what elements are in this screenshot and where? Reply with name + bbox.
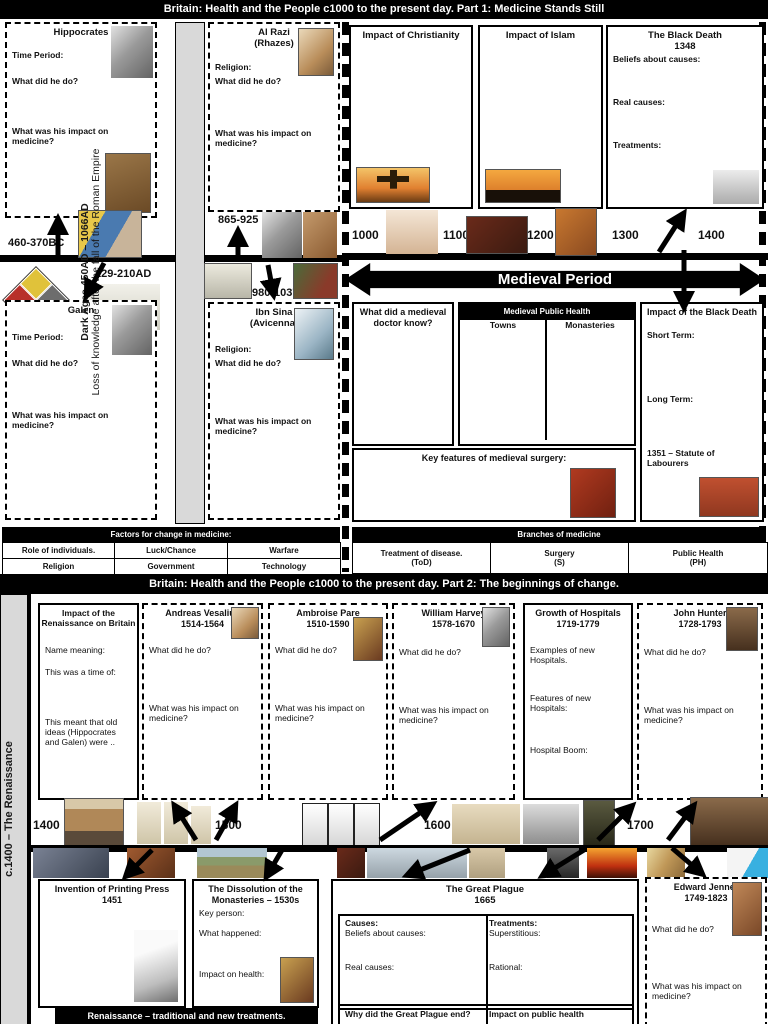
christianity-box: Impact of Christianity — [349, 25, 473, 209]
harvey-portrait-image — [482, 607, 510, 647]
hospitals-f3: Hospital Boom: — [530, 745, 626, 755]
black-death-title: The Black Death — [608, 30, 762, 41]
medieval-scene2-image — [466, 216, 528, 254]
plague-treatments-label: Treatments: — [489, 918, 627, 928]
plague-real-label: Real causes: — [345, 962, 481, 972]
arrow-down-dissolution — [268, 850, 282, 874]
hospitals-f1: Examples of new Hospitals. — [530, 645, 626, 665]
muscle-hand-drawing-image — [328, 803, 354, 847]
market-scene-image — [647, 848, 685, 878]
factor-luck: Luck/Chance — [114, 542, 228, 559]
plague-ph-label: Impact on public health — [489, 1009, 627, 1019]
hand-drawing-image — [303, 212, 337, 258]
branch-surgery-abbr: (S) — [554, 558, 565, 567]
plague-causes-label: Causes: — [345, 918, 481, 928]
renaissance-f2: This was a time of: — [45, 667, 132, 677]
renaissance-f3: This meant that old ideas (Hippocrates a… — [45, 717, 132, 747]
vesalius-q-impact: What was his impact on medicine? — [149, 703, 256, 723]
pare-box: Ambroise Pare 1510-1590 What did he do? … — [268, 603, 388, 800]
plague-dark-image — [337, 848, 365, 878]
school-of-athens-image — [64, 798, 124, 846]
black-death-box: The Black Death 1348 Beliefs about cause… — [606, 25, 764, 209]
hunter-museum-image — [690, 797, 768, 846]
plague-end-question: Why did the Great Plague end? — [345, 1009, 481, 1019]
jenner-box: Edward Jenner 1749-1823 What did he do? … — [645, 877, 767, 1024]
hospitals-f2: Features of new Hospitals: — [530, 693, 626, 713]
dissolution-box: The Dissolution of the Monasteries – 153… — [192, 879, 319, 1008]
branch-tod: Treatment of disease. (ToD) — [352, 542, 491, 574]
timeline2-1500: 1500 — [215, 818, 242, 832]
renaissance-sidebar-label: c.1400 – The Renaissance — [3, 594, 25, 1024]
dissolution-title2: Monasteries – 1530s — [194, 895, 317, 906]
branch-ph-label: Public Health — [673, 549, 724, 558]
hospitals-dates: 1719-1779 — [525, 619, 631, 630]
renaissance-strip-border — [27, 594, 31, 1024]
hippocrates-dates: 460-370BC — [8, 237, 64, 249]
ibn-sina-q-impact: What was his impact on medicine? — [215, 416, 333, 436]
plague-end-cell: Why did the Great Plague end? — [338, 1004, 488, 1024]
medieval-surgery-image — [570, 468, 616, 518]
hospitals-title: Growth of Hospitals — [525, 608, 631, 619]
medieval-surgery-title: Key features of medieval surgery: — [354, 453, 634, 464]
al-razi-dates: 865-925 — [218, 214, 258, 226]
plague-title: The Great Plague — [333, 884, 637, 895]
timeline-1000: 1000 — [352, 228, 379, 242]
plague-ph-cell: Impact on public health — [484, 1004, 634, 1024]
hunter-q-do: What did he do? — [644, 647, 756, 657]
muscle-arm-drawing-image — [302, 803, 328, 847]
renaissance-treatments-banner: Renaissance – traditional and new treatm… — [55, 1008, 318, 1024]
ibn-sina-box: Ibn Sina (Avicenna) Religion: What did h… — [208, 302, 340, 520]
printing-press-drawing-image — [134, 930, 178, 1002]
timeline-1300: 1300 — [612, 228, 639, 242]
vesalius-box: Andreas Vesalius 1514-1564 What did he d… — [142, 603, 263, 800]
great-fire-image — [587, 848, 637, 878]
black-death-f1: Beliefs about causes: — [613, 54, 757, 64]
branches-title: Branches of medicine — [352, 527, 766, 542]
public-health-title: Medieval Public Health — [460, 304, 634, 320]
mosque-sunset-image — [485, 169, 561, 203]
factor-individuals: Role of individuals. — [2, 542, 115, 559]
public-health-col-towns: Towns — [460, 320, 546, 330]
monastery-ruins-image — [197, 848, 267, 878]
harvey-q-impact: What was his impact on medicine? — [399, 705, 508, 725]
ibn-sina-dates: 980-1037 — [252, 287, 299, 299]
timeline-1400: 1400 — [698, 228, 725, 242]
harvey-q-do: What did he do? — [399, 647, 508, 657]
metal-type-image — [33, 848, 109, 878]
part1-divider-left — [342, 22, 349, 572]
islam-title: Impact of Islam — [480, 30, 601, 41]
al-razi-religion: Religion: — [215, 62, 333, 72]
impact-black-death-box: Impact of the Black Death Short Term: Lo… — [640, 302, 764, 522]
branches-table: Branches of medicine Treatment of diseas… — [352, 527, 766, 574]
branch-tod-label: Treatment of disease. — [381, 549, 463, 558]
pare-q-do: What did he do? — [275, 645, 381, 655]
dissolution-f1: Key person: — [199, 908, 312, 918]
dark-ages-label: Dark Ages 450AD – 1066AD Loss of knowled… — [80, 22, 102, 522]
medieval-doctor-question: What did a medieval doctor know? — [354, 307, 452, 329]
plague-street-image — [367, 848, 467, 878]
islam-box: Impact of Islam — [478, 25, 603, 209]
pharmacy-painting-image — [293, 263, 338, 299]
hunter-portrait-image — [726, 607, 758, 651]
timeline2-1600: 1600 — [424, 818, 451, 832]
factor-religion: Religion — [2, 558, 115, 575]
muscle-forearm-drawing-image — [354, 803, 380, 847]
plague-treatments-cell: Treatments: Superstitious: Rational: — [484, 914, 634, 1010]
al-razi-box: Al Razi (Rhazes) Religion: What did he d… — [208, 22, 340, 212]
hospitals-box: Growth of Hospitals 1719-1779 Examples o… — [523, 603, 633, 800]
arrow-up-harvey — [380, 806, 430, 840]
harvey-box: William Harvey 1578-1670 What did he do?… — [392, 603, 515, 800]
great-plague-box: The Great Plague 1665 Causes: Beliefs ab… — [331, 879, 639, 1024]
public-health-table: Medieval Public Health Towns Monasteries — [458, 302, 636, 446]
branch-ph: Public Health (PH) — [628, 542, 768, 574]
jenner-q-do: What did he do? — [652, 924, 760, 934]
hunter-box: John Hunter 1728-1793 What did he do? Wh… — [637, 603, 763, 800]
part1-title: Britain: Health and the People c1000 to … — [0, 0, 768, 19]
medieval-doctor-box: What did a medieval doctor know? — [352, 302, 454, 446]
black-death-year: 1348 — [608, 41, 762, 52]
heart-diagrams-image — [452, 804, 520, 844]
impact-bd-short: Short Term: — [647, 330, 757, 340]
hospital-engraving-image — [523, 804, 579, 844]
black-death-f2: Real causes: — [613, 97, 757, 107]
timeline2-1700: 1700 — [627, 818, 654, 832]
impact-bd-title: Impact of the Black Death — [642, 307, 762, 318]
branch-ph-abbr: (PH) — [690, 558, 706, 567]
branch-surgery: Surgery (S) — [490, 542, 629, 574]
vesalius-portrait-image — [231, 607, 259, 639]
renaissance-f1: Name meaning: — [45, 645, 132, 655]
medieval-surgery-box: Key features of medieval surgery: — [352, 448, 636, 522]
print-shop-image — [127, 848, 175, 878]
medieval-scene3-image — [555, 208, 597, 256]
pare-q-impact: What was his impact on medicine? — [275, 703, 381, 723]
dissolution-title1: The Dissolution of the — [194, 884, 317, 895]
medieval-farming-image — [699, 477, 759, 517]
plague-year: 1665 — [333, 895, 637, 906]
specimen-jar-image — [583, 800, 615, 846]
factor-technology: Technology — [227, 558, 341, 575]
black-death-f3: Treatments: — [613, 140, 757, 150]
impact-bd-long: Long Term: — [647, 394, 757, 404]
old-book-image — [105, 153, 151, 213]
cross-sunset-image — [356, 167, 430, 203]
dissolution-f2: What happened: — [199, 928, 312, 938]
dark-ages-strip — [175, 22, 205, 524]
vesalius-q-do: What did he do? — [149, 645, 256, 655]
plague-beliefs-label: Beliefs about causes: — [345, 928, 481, 938]
medieval-scene1-image — [386, 210, 438, 254]
plague-rational-label: Rational: — [489, 962, 627, 972]
printing-press-box: Invention of Printing Press 1451 — [38, 879, 186, 1008]
rhazes-engraving-image — [262, 212, 302, 258]
henry-viii-portrait-image — [280, 957, 314, 1003]
galen-portrait-image — [112, 305, 152, 355]
dark-ages-line2: Loss of knowledge after the fall of the … — [91, 22, 102, 522]
plague-superstitious-label: Superstitious: — [489, 928, 627, 938]
plague-cat-image — [469, 848, 505, 878]
arrow-to-blackdeath — [659, 216, 682, 252]
anatomy-sketch2-image — [164, 802, 188, 844]
timeline-1200: 1200 — [527, 228, 554, 242]
hunter-q-impact: What was his impact on medicine? — [644, 705, 756, 725]
printing-title: Invention of Printing Press — [40, 884, 184, 895]
medieval-period-banner: Medieval Period — [345, 263, 765, 296]
factor-warfare: Warfare — [227, 542, 341, 559]
jenner-q-impact: What was his impact on medicine? — [652, 981, 760, 1001]
timeline2-1400: 1400 — [33, 818, 60, 832]
christianity-title: Impact of Christianity — [351, 30, 471, 41]
branch-surgery-label: Surgery — [544, 549, 574, 558]
public-health-divider — [545, 320, 547, 440]
black-death-engraving-image — [713, 170, 759, 204]
renaissance-impact-box: Impact of the Renaissance on Britain Nam… — [38, 603, 139, 800]
renaissance-title2: Renaissance on Britain — [40, 618, 137, 629]
anatomy-sketch3-image — [191, 806, 211, 844]
al-razi-q-do: What did he do? — [215, 76, 333, 86]
part2-title: Britain: Health and the People c1000 to … — [0, 574, 768, 594]
branch-tod-abbr: (ToD) — [411, 558, 431, 567]
public-health-col-monasteries: Monasteries — [548, 320, 632, 330]
factors-title: Factors for change in medicine: — [2, 527, 340, 542]
al-razi-q-impact: What was his impact on medicine? — [215, 128, 333, 148]
galen-dates: 129-210AD — [95, 268, 151, 280]
worksheet-page: Britain: Health and the People c1000 to … — [0, 0, 768, 1024]
printing-year: 1451 — [40, 895, 184, 906]
impact-bd-statute: 1351 – Statute of Labourers — [647, 448, 757, 468]
factors-table: Factors for change in medicine: Role of … — [2, 527, 340, 574]
ibn-sina-religion: Religion: — [215, 344, 333, 354]
arrow-up-hunter — [668, 808, 692, 840]
plague-pit-image — [547, 848, 579, 878]
open-book-image — [204, 263, 252, 299]
anatomy-sketch1-image — [137, 802, 161, 844]
plague-causes-cell: Causes: Beliefs about causes: Real cause… — [338, 914, 488, 1010]
factor-government: Government — [114, 558, 228, 575]
ibn-sina-q-do: What did he do? — [215, 358, 333, 368]
syringe-glove-image — [727, 848, 768, 878]
